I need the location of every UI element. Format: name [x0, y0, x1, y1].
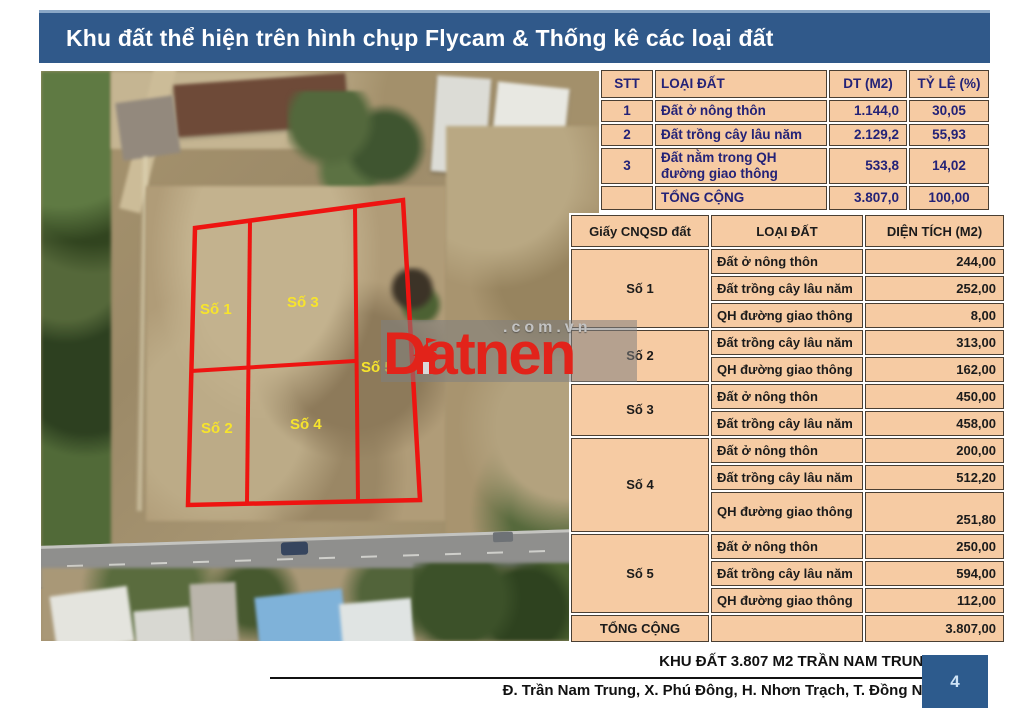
cell-type: Đất ở nông thôn — [711, 438, 863, 463]
header-dt-m2: DT (M2) — [829, 70, 907, 98]
cell-type: QH đường giao thông — [711, 588, 863, 613]
cell-total-label: TỔNG CỘNG — [571, 615, 709, 642]
cell-area: 313,00 — [865, 330, 1004, 355]
footer-title: KHU ĐẤT 3.807 M2 TRẦN NAM TRUNG — [270, 653, 935, 670]
cell-type: QH đường giao thông — [711, 492, 863, 532]
page-title: Khu đất thể hiện trên hình chụp Flycam &… — [39, 25, 774, 52]
title-bar: Khu đất thể hiện trên hình chụp Flycam &… — [39, 10, 990, 63]
cell-stt: 2 — [601, 124, 653, 146]
header-ty-le: TỶ LỆ (%) — [909, 70, 989, 98]
cell-ratio: 30,05 — [909, 100, 989, 122]
cell-empty — [601, 186, 653, 210]
footer-divider — [270, 677, 935, 679]
footer-address: Đ. Trần Nam Trung, X. Phú Đông, H. Nhơn … — [270, 682, 935, 699]
table-row: 1 Đất ở nông thôn 1.144,0 30,05 — [601, 100, 989, 122]
table-row: Số 4 Đất ở nông thôn 200,00 — [571, 438, 1004, 463]
cell-type: Đất trồng cây lâu năm — [711, 276, 863, 301]
table-row: 2 Đất trồng cây lâu năm 2.129,2 55,93 — [601, 124, 989, 146]
table-row: Số 5 Đất ở nông thôn 250,00 — [571, 534, 1004, 559]
header-dien-tich: DIỆN TÍCH (M2) — [865, 215, 1004, 247]
cell-group-so-4: Số 4 — [571, 438, 709, 532]
table-row: Số 1 Đất ở nông thôn 244,00 — [571, 249, 1004, 274]
header-giay-cnqsd: Giấy CNQSD đất — [571, 215, 709, 247]
cell-type: Đất ở nông thôn — [711, 534, 863, 559]
cell-area: 458,00 — [865, 411, 1004, 436]
cell-area: 8,00 — [865, 303, 1004, 328]
house-icon — [411, 338, 441, 378]
cell-area: 162,00 — [865, 357, 1004, 382]
cell-total-label: TỔNG CỘNG — [655, 186, 827, 210]
cell-type: Đất ở nông thôn — [711, 249, 863, 274]
certificate-detail-table: Giấy CNQSD đất LOẠI ĐẤT DIỆN TÍCH (M2) S… — [569, 213, 1006, 644]
cell-ratio: 55,93 — [909, 124, 989, 146]
plot-label-2: Số 2 — [201, 420, 233, 437]
cell-type: Đất trồng cây lâu năm — [655, 124, 827, 146]
page-number-box: 4 — [922, 655, 988, 708]
cell-area: 251,80 — [865, 492, 1004, 532]
cell-area: 200,00 — [865, 438, 1004, 463]
plot-divider-horizontal — [191, 361, 355, 371]
cell-stt: 1 — [601, 100, 653, 122]
cell-empty — [711, 615, 863, 642]
watermark: .com.vn Datnen — [381, 316, 639, 396]
cell-stt: 3 — [601, 148, 653, 184]
table-total-row: TỔNG CỘNG 3.807,00 — [571, 615, 1004, 642]
cell-area: 594,00 — [865, 561, 1004, 586]
cell-area: 244,00 — [865, 249, 1004, 274]
cell-total-area: 3.807,0 — [829, 186, 907, 210]
header-stt: STT — [601, 70, 653, 98]
page-number: 4 — [950, 672, 959, 692]
cell-type: Đất trồng cây lâu năm — [711, 330, 863, 355]
cell-ratio: 14,02 — [909, 148, 989, 184]
cell-area: 450,00 — [865, 384, 1004, 409]
table-header-row: Giấy CNQSD đất LOẠI ĐẤT DIỆN TÍCH (M2) — [571, 215, 1004, 247]
slide: Khu đất thể hiện trên hình chụp Flycam &… — [0, 0, 1024, 708]
cell-area: 252,00 — [865, 276, 1004, 301]
plot-divider-vertical-2 — [355, 207, 358, 501]
cell-area: 112,00 — [865, 588, 1004, 613]
table-total-row: TỔNG CỘNG 3.807,0 100,00 — [601, 186, 989, 210]
cell-area: 1.144,0 — [829, 100, 907, 122]
plot-divider-vertical-1 — [247, 221, 250, 503]
cell-total-ratio: 100,00 — [909, 186, 989, 210]
land-type-summary-table: STT LOẠI ĐẤT DT (M2) TỶ LỆ (%) 1 Đất ở n… — [599, 68, 991, 212]
cell-area: 533,8 — [829, 148, 907, 184]
cell-area: 2.129,2 — [829, 124, 907, 146]
cell-type: QH đường giao thông — [711, 303, 863, 328]
cell-type: Đất trồng cây lâu năm — [711, 411, 863, 436]
cell-type: Đất trồng cây lâu năm — [711, 561, 863, 586]
cell-type: Đất trồng cây lâu năm — [711, 465, 863, 490]
cell-type: Đất ở nông thôn — [655, 100, 827, 122]
cell-type: QH đường giao thông — [711, 357, 863, 382]
header-loai-dat: LOẠI ĐẤT — [711, 215, 863, 247]
cell-type: Đất ở nông thôn — [711, 384, 863, 409]
table-row: 3 Đất nằm trong QH đường giao thông 533,… — [601, 148, 989, 184]
plot-label-1: Số 1 — [200, 301, 232, 318]
cell-area: 250,00 — [865, 534, 1004, 559]
cell-group-so-5: Số 5 — [571, 534, 709, 613]
cell-type: Đất nằm trong QH đường giao thông — [655, 148, 827, 184]
table-header-row: STT LOẠI ĐẤT DT (M2) TỶ LỆ (%) — [601, 70, 989, 98]
plot-label-3: Số 3 — [287, 294, 319, 311]
cell-total-area: 3.807,00 — [865, 615, 1004, 642]
cell-area: 512,20 — [865, 465, 1004, 490]
header-loai-dat: LOẠI ĐẤT — [655, 70, 827, 98]
plot-label-4: Số 4 — [290, 416, 322, 433]
